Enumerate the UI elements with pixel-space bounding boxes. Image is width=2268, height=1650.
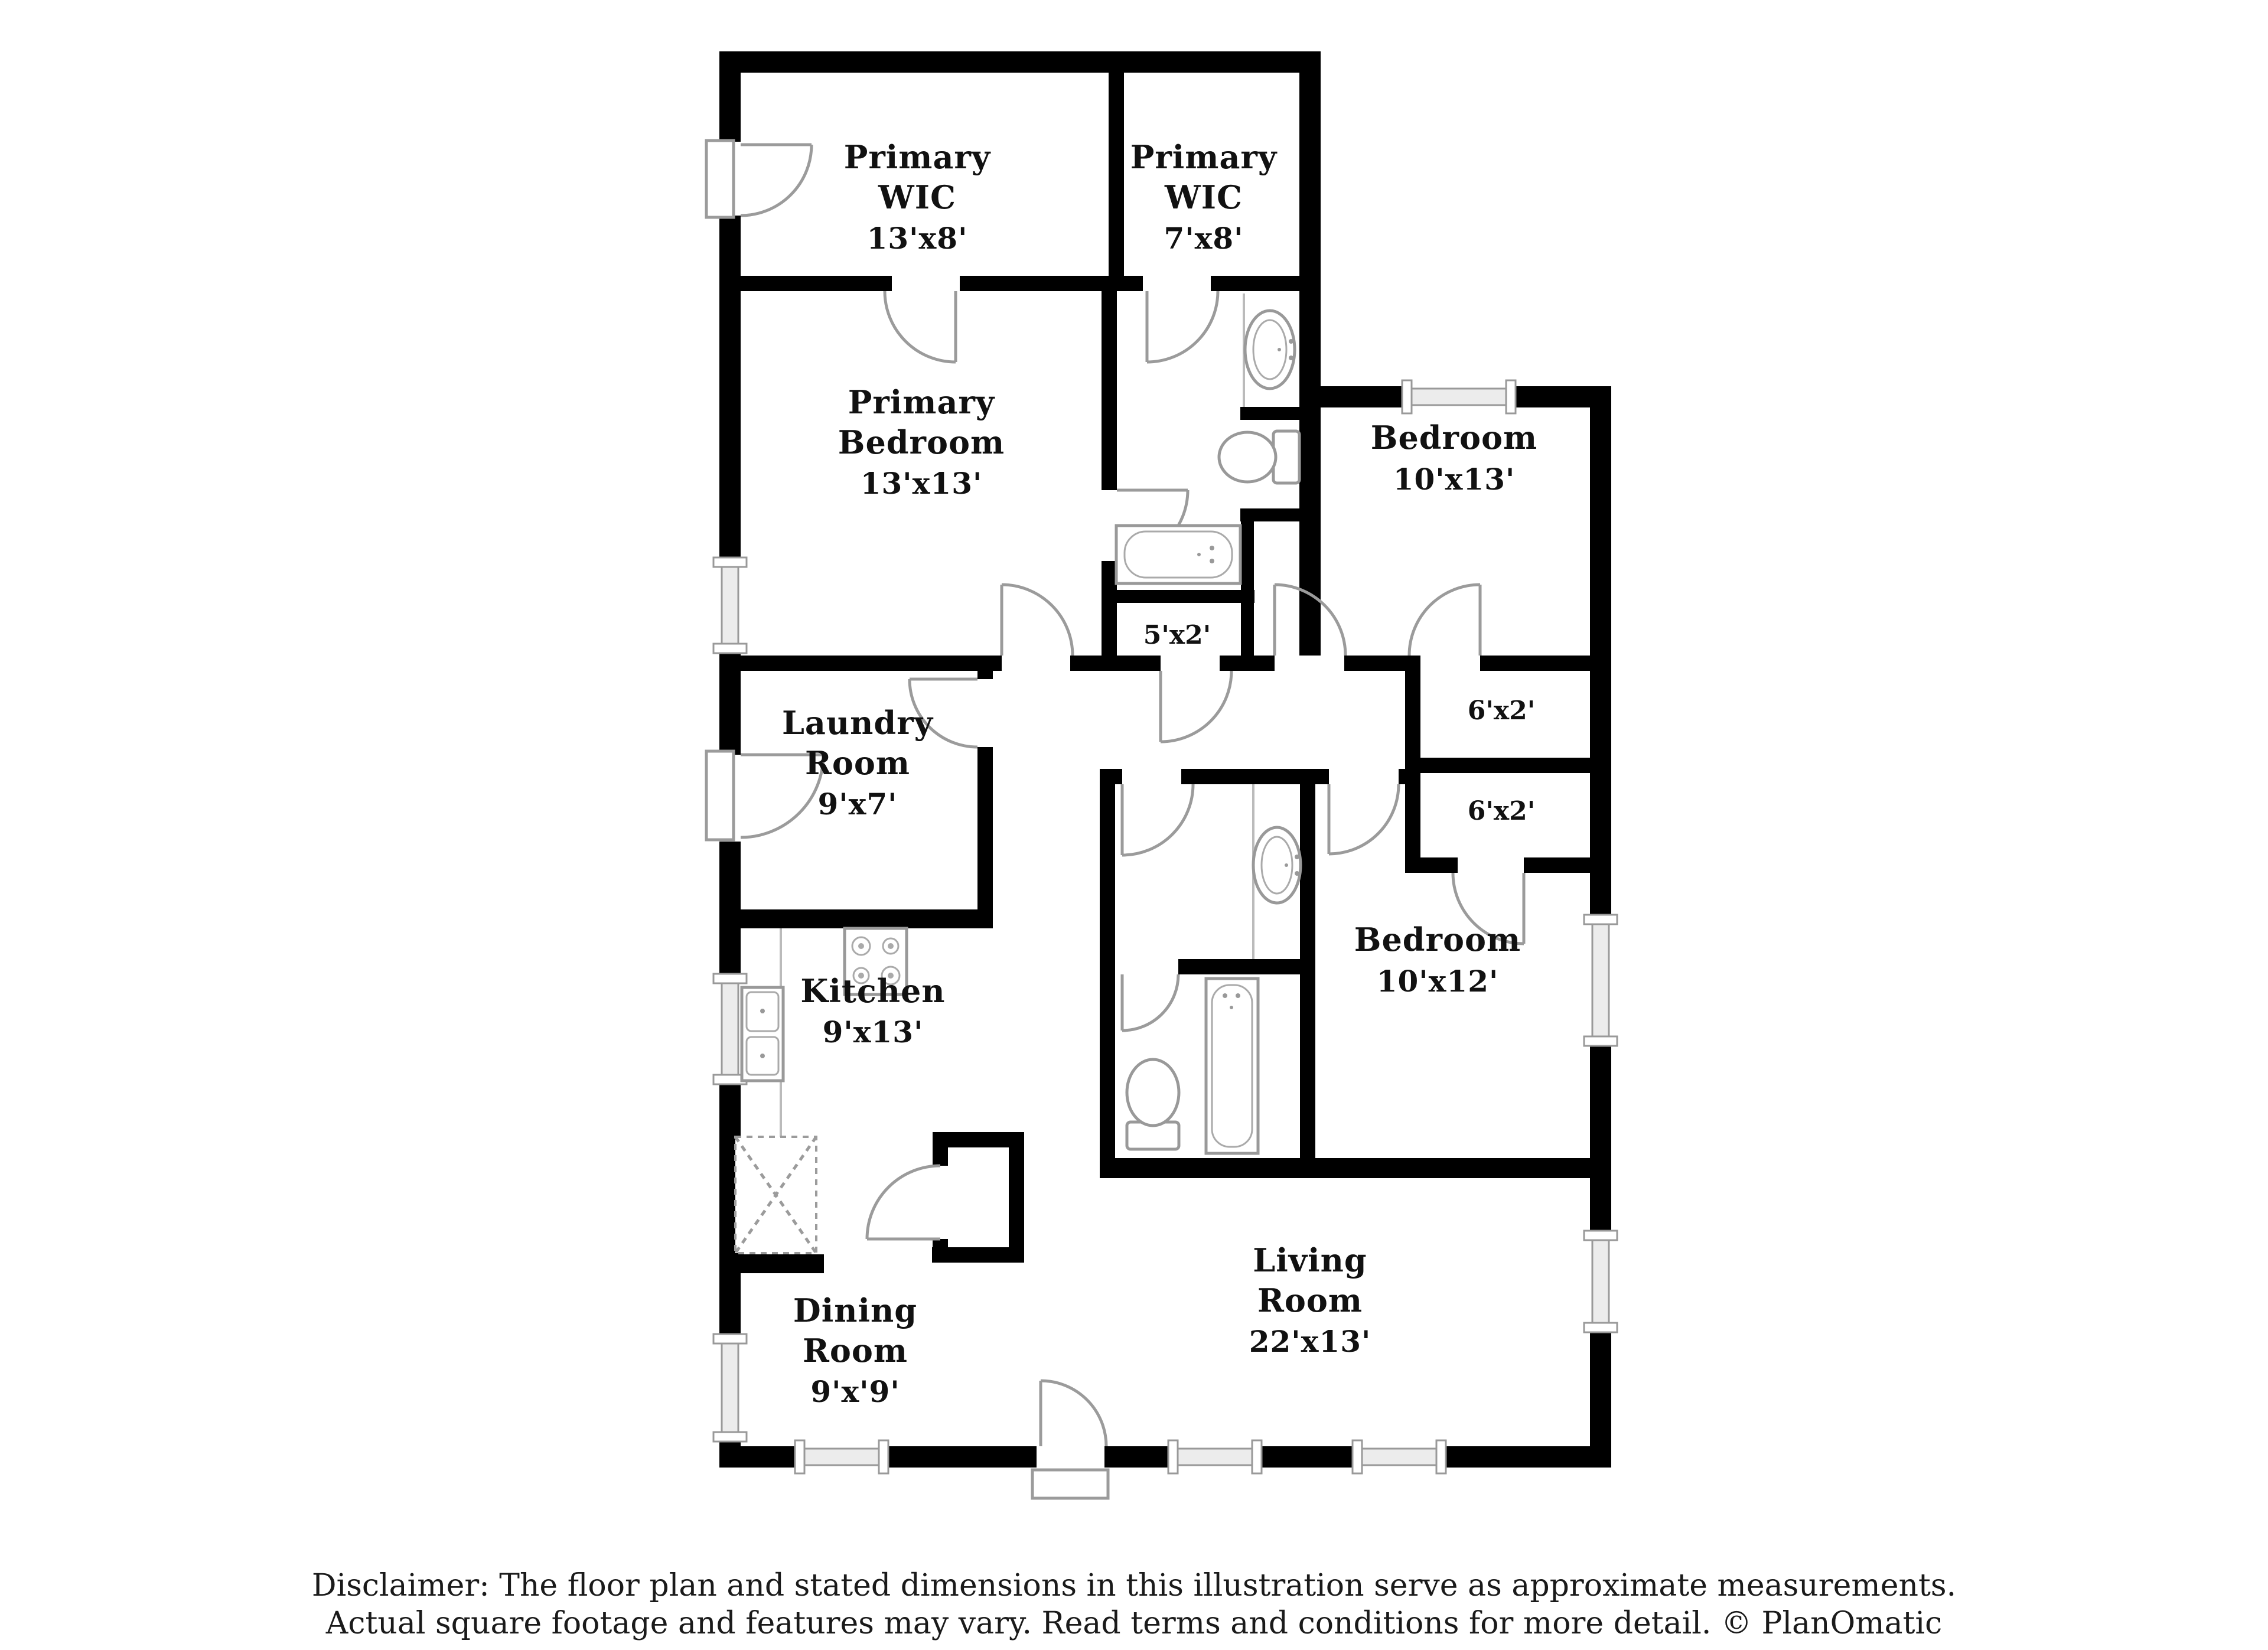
label-primary-bedroom: Primary Bedroom 13'x13' (838, 383, 1005, 501)
room-name: Primary (848, 383, 995, 421)
front-door (1032, 1381, 1108, 1498)
label-living-room: Living Room 22'x13' (1249, 1241, 1371, 1359)
window-bedroom-upper (1402, 380, 1516, 413)
room-dimensions: 10'x13' (1393, 462, 1516, 497)
window-right-living (1584, 1231, 1617, 1332)
door-bathroom-2 (1122, 784, 1193, 855)
disclaimer-line-2: Actual square footage and features may v… (325, 1606, 1942, 1641)
room-name: Laundry (782, 704, 934, 742)
disclaimer: Disclaimer: The floor plan and stated di… (312, 1568, 1956, 1641)
room-name: Primary (844, 138, 991, 176)
utility-box-icon (735, 1137, 816, 1253)
toilet-icon (1219, 431, 1299, 483)
door-bathroom-2-inner (1122, 974, 1178, 1031)
room-dimensions: 9'x'9' (810, 1374, 900, 1409)
room-name: Room (805, 744, 910, 782)
room-dimensions: 9'x13' (823, 1015, 924, 1049)
window-primary-bedroom (713, 557, 747, 653)
label-closet-6x2-lower: 6'x2' (1468, 796, 1535, 826)
floor-plan-page: Primary WIC 13'x8' Primary WIC 7'x8' Pri… (0, 0, 2268, 1650)
room-name: WIC (1164, 178, 1243, 216)
room-name: Bedroom (1354, 921, 1521, 958)
label-primary-wic-small: Primary WIC 7'x8' (1130, 138, 1278, 256)
floor-plan-canvas: Primary WIC 13'x8' Primary WIC 7'x8' Pri… (0, 0, 2268, 1650)
room-name: WIC (878, 178, 956, 216)
room-dimensions: 10'x12' (1377, 964, 1499, 999)
bathtub-icon (1206, 979, 1258, 1153)
sink-icon (1245, 311, 1295, 389)
disclaimer-line-1: Disclaimer: The floor plan and stated di… (312, 1568, 1956, 1603)
window-dining (713, 1334, 747, 1442)
window-bottom-living-2 (1353, 1440, 1446, 1473)
door-closet-6x2-upper (1409, 585, 1480, 656)
window-right-bedroom-lower (1584, 915, 1617, 1046)
door-wic-large (885, 291, 956, 362)
room-dimensions: 13'x8' (867, 221, 968, 256)
label-laundry: Laundry Room 9'x7' (782, 704, 934, 821)
label-bedroom-upper: Bedroom 10'x13' (1371, 419, 1537, 497)
room-name: Bedroom (1371, 419, 1537, 456)
label-closet-6x2-upper: 6'x2' (1468, 696, 1535, 726)
window-bottom-living-1 (1168, 1440, 1262, 1473)
room-name: Dining (793, 1292, 917, 1329)
door-primary-bedroom (1002, 585, 1073, 656)
door-closet-5x2 (1161, 671, 1231, 742)
door-kitchen-closet (867, 1166, 940, 1239)
toilet-icon (1127, 1059, 1179, 1149)
label-dining-room: Dining Room 9'x'9' (793, 1292, 917, 1409)
room-dimensions: 9'x7' (817, 787, 897, 821)
label-closet-5x2: 5'x2' (1143, 620, 1211, 650)
room-name: Primary (1130, 138, 1278, 176)
room-dimensions: 22'x13' (1249, 1324, 1371, 1359)
label-primary-wic-large: Primary WIC 13'x8' (844, 138, 991, 256)
label-bedroom-lower: Bedroom 10'x12' (1354, 921, 1521, 999)
room-dimensions: 7'x8' (1164, 221, 1243, 256)
room-dimensions: 13'x13' (861, 466, 983, 501)
room-name: Bedroom (838, 423, 1005, 461)
door-bedroom-lower (1329, 784, 1399, 854)
room-name: Room (1257, 1281, 1363, 1319)
kitchen-sink-icon (742, 987, 783, 1081)
label-kitchen: Kitchen 9'x13' (800, 972, 945, 1049)
door-wic-small (1147, 291, 1218, 362)
primary-bath-fixtures (1116, 294, 1299, 583)
exterior-door-wic (706, 141, 812, 217)
sink-icon (1253, 827, 1301, 903)
window-bottom-dining (795, 1440, 888, 1473)
room-name: Kitchen (800, 972, 945, 1010)
bathtub-icon (1116, 526, 1240, 583)
room-name: Living (1253, 1241, 1367, 1279)
room-name: Room (803, 1332, 908, 1369)
